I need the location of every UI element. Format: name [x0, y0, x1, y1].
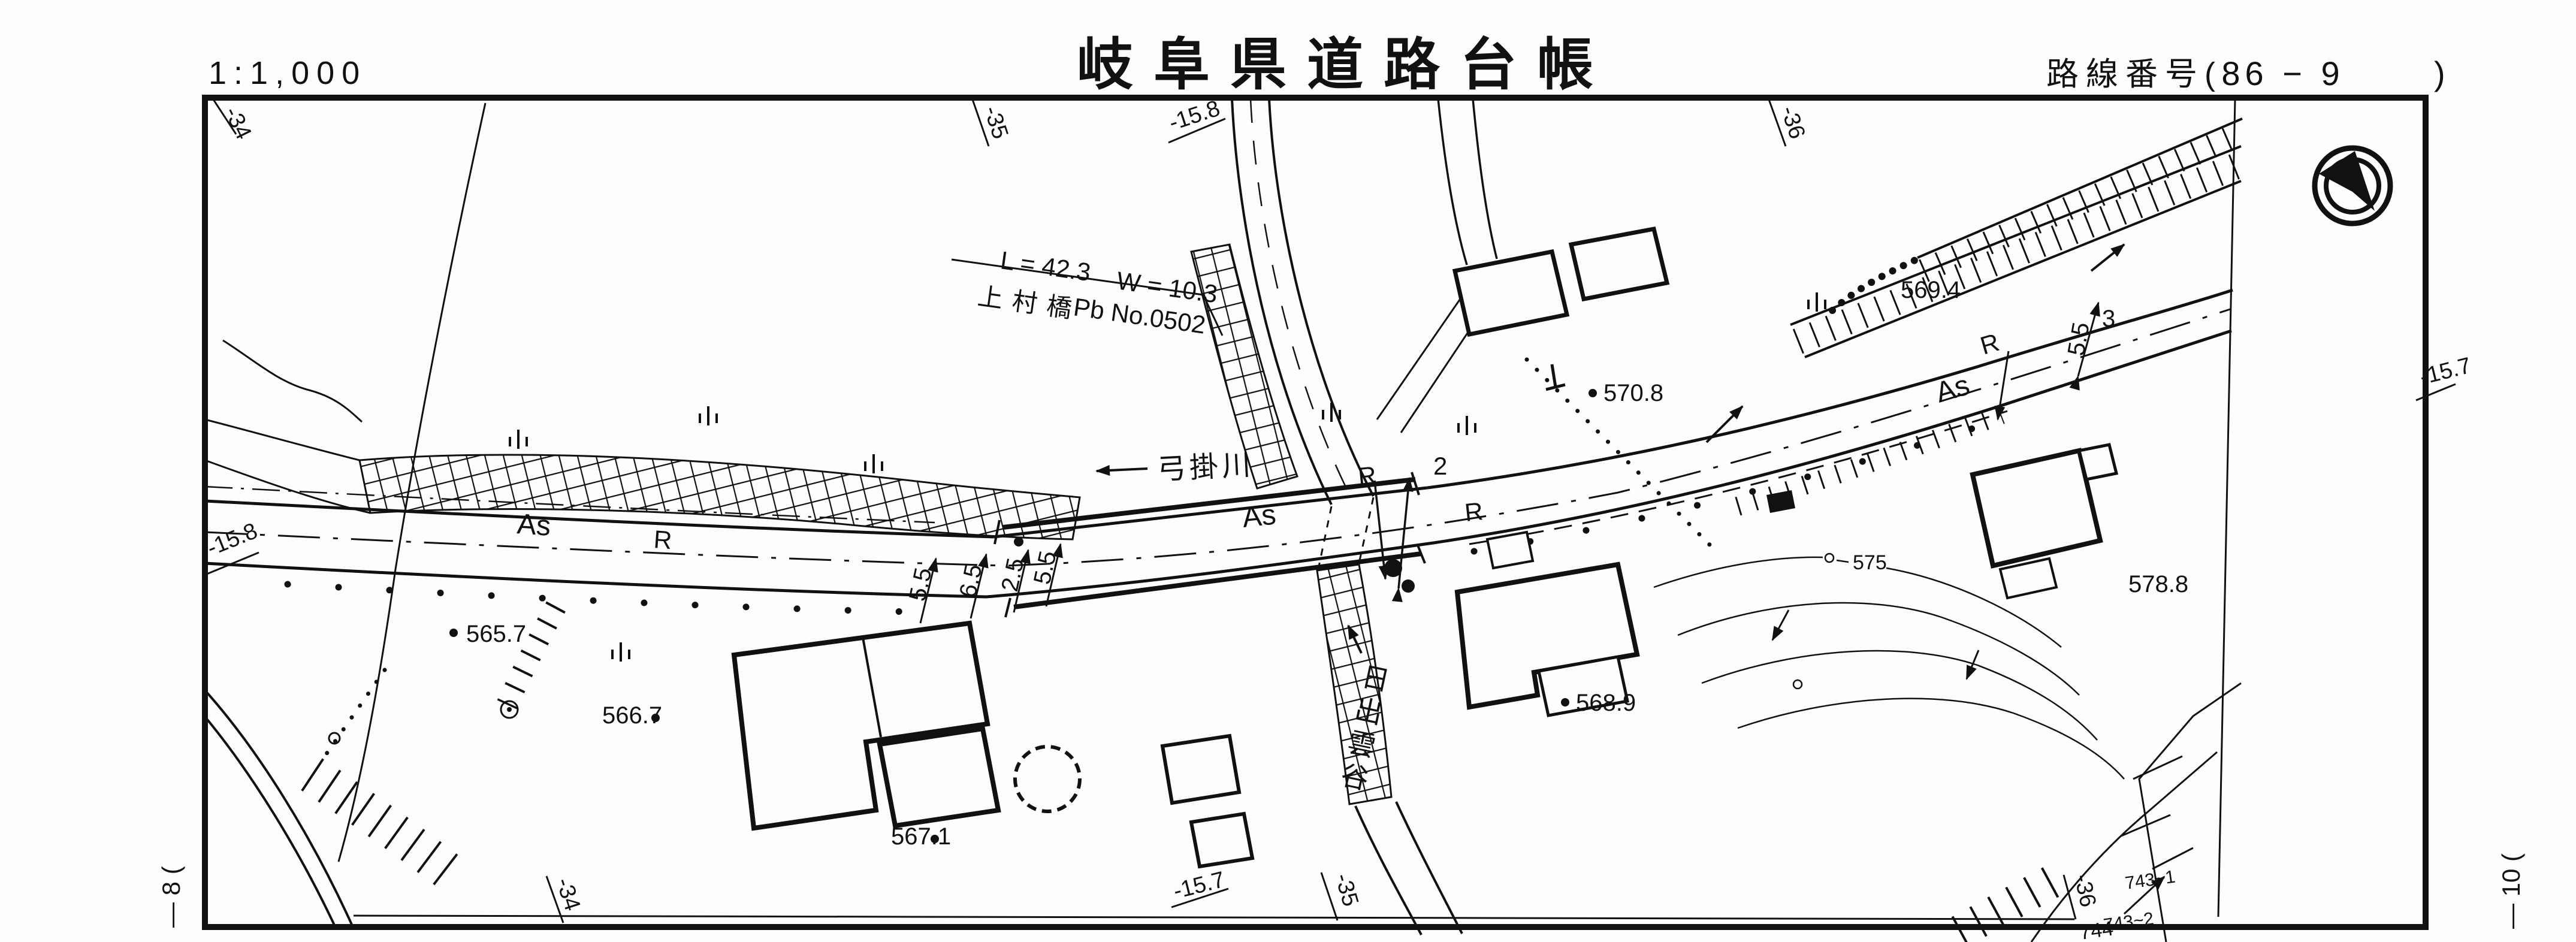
- flow-arrow: [1399, 478, 1409, 588]
- building-outline: [880, 729, 998, 826]
- grid-label-bottom-157: -15.7: [1171, 867, 1227, 904]
- surface-label-as-3: As: [1932, 369, 1973, 409]
- contour-label-575: 575: [1853, 551, 1887, 574]
- width-label-65: 6.5: [955, 562, 987, 600]
- route-number-value: 86 − 9: [2221, 55, 2344, 92]
- surface-label-r-4: R: [1977, 328, 2003, 360]
- neat-line-bottom: [354, 916, 2074, 919]
- pole-symbol: [1546, 364, 1565, 390]
- grid-label-bottom-36: -36: [2069, 872, 2101, 909]
- spot-elevation-5671: 567.1: [891, 823, 951, 850]
- grid-label-top-34: -34: [219, 103, 256, 144]
- surface-label-r-2: R: [1357, 461, 1378, 491]
- spot-elevation-5689: 568.9: [1576, 690, 1636, 716]
- building-outline: [1973, 451, 2100, 566]
- spot-elevation-5708: 570.8: [1603, 380, 1663, 406]
- lane-southwest: [205, 690, 352, 928]
- river-annotation: 弓掛川: [1097, 449, 1255, 486]
- parcel-label-743-1: 743~1: [2124, 867, 2176, 893]
- grid-label-top-35: -35: [979, 103, 1013, 142]
- width-label-55c: 5.5: [2063, 321, 2095, 358]
- bridge-name-label: 上村橋: [976, 282, 1083, 324]
- parcel-label-744: 744: [2078, 917, 2115, 942]
- surface-label-r-1: R: [653, 525, 673, 554]
- spot-elevation-5657: 565.7: [466, 621, 526, 647]
- tree-circle: [1015, 747, 1080, 811]
- pole-symbol: [1402, 579, 1415, 593]
- width-label-25: 2.5: [996, 556, 1029, 594]
- page-title: 岐阜県道路台帳: [1077, 33, 1614, 96]
- field-hachure: [312, 774, 446, 870]
- building-outline: [1162, 736, 1239, 803]
- spot-elevation-5788: 578.8: [2128, 571, 2188, 597]
- building-outline: [1455, 252, 1567, 334]
- lane-count-label: 2: [1433, 452, 1447, 480]
- surface-label-as-2: As: [1241, 499, 1278, 534]
- building-outline: [1571, 229, 1667, 299]
- parcel-hachure: [1959, 880, 2055, 932]
- route-number-suffix: ): [2434, 55, 2450, 92]
- building-outline: [1191, 814, 1252, 866]
- header: 1:1,000 岐阜県道路台帳 路線番号( 86 − 9 ): [209, 33, 2450, 96]
- map-symbols: [510, 244, 2124, 662]
- width-label-3: 3: [2102, 306, 2115, 332]
- scale-label: 1:1,000: [209, 55, 367, 91]
- sheet-number-right: — 10 (: [2497, 853, 2525, 929]
- flow-arrow: [1375, 481, 1385, 579]
- grid-label-top-158: -15.8: [1166, 96, 1223, 136]
- grid-label-top-36: -36: [1775, 103, 1810, 142]
- width-label-55a: 5.5: [904, 566, 937, 604]
- surface-label-as-1: As: [516, 508, 552, 542]
- small-creek: [223, 340, 362, 422]
- surface-label-r-3: R: [1463, 497, 1484, 527]
- buildings: [734, 229, 2116, 866]
- neat-line-right: [2218, 99, 2235, 917]
- scarp-hachure-east: [1738, 415, 2001, 506]
- width-label-55b: 5.5: [1029, 549, 1062, 587]
- sheet-number-left: — 8 (: [157, 866, 185, 928]
- spot-elevation-5694: 569.4: [1901, 277, 1961, 303]
- bridge-length-label: L = 42.3: [999, 246, 1092, 286]
- grid-label-bottom-35: -35: [1330, 871, 1363, 909]
- grid-label-bottom-34: -34: [551, 875, 585, 914]
- road-ledger-sheet: 1:1,000 岐阜県道路台帳 路線番号( 86 − 9 ) — 8 ( — 1…: [0, 0, 2576, 942]
- north-arrow-icon: [2315, 148, 2390, 224]
- river-name-label: 弓掛川: [1156, 449, 1255, 486]
- river-flow-arrow: [1097, 469, 1147, 471]
- route-number-prefix: 路線番号(: [2046, 56, 2222, 92]
- guardrail-dots-west: [288, 584, 947, 612]
- slope-hachures-northeast: [1790, 119, 2242, 357]
- bridge-annotation: L = 42.3 W = 10.3 上村橋 Pb No.0502: [952, 246, 1222, 339]
- guardrail-dots-east: [1474, 419, 2001, 551]
